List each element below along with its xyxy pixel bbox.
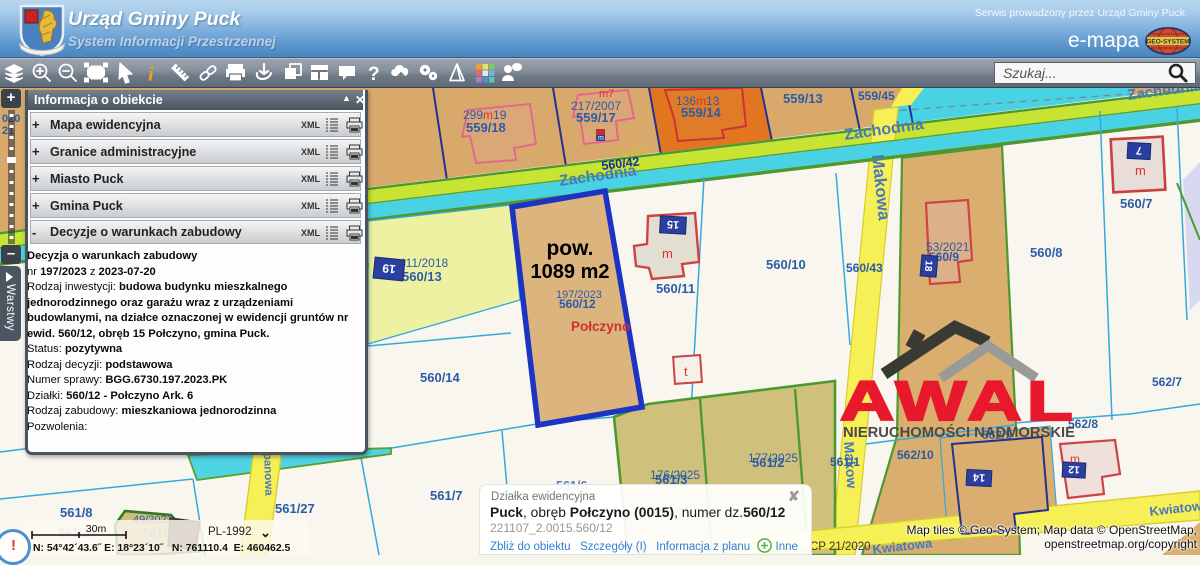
svg-text:559/45: 559/45 [858,89,895,103]
svg-text:15: 15 [667,218,680,231]
svg-text:562/10: 562/10 [897,448,934,462]
svg-text:561/1: 561/1 [830,455,860,469]
svg-text:561/7: 561/7 [430,488,463,503]
svg-text:560/7: 560/7 [1120,196,1153,211]
svg-text:560/8: 560/8 [1030,245,1063,260]
svg-text:1089 m2: 1089 m2 [531,261,610,283]
svg-text:?: ? [368,64,380,85]
svg-text:CP 21/2020: CP 21/2020 [810,541,871,553]
svg-text:t: t [684,364,688,379]
svg-text:560/43: 560/43 [846,261,883,275]
svg-text:560/13: 560/13 [402,269,442,284]
svg-text:19: 19 [381,261,396,276]
svg-text:7: 7 [1136,144,1143,156]
svg-text:i: i [148,62,154,86]
svg-text:559/13: 559/13 [783,91,823,106]
svg-text:pow.: pow. [546,237,593,260]
svg-text:m7: m7 [599,88,614,100]
svg-text:14: 14 [972,471,986,484]
svg-text:m: m [1135,163,1146,178]
svg-text:561/2: 561/2 [752,455,785,470]
svg-text:560/12: 560/12 [559,297,596,311]
svg-text:m: m [598,135,604,142]
svg-text:561/27: 561/27 [275,501,315,516]
svg-text:AWAL: AWAL [840,369,1078,432]
svg-text:411/2018: 411/2018 [399,256,448,270]
svg-text:GEO-SYSTEM: GEO-SYSTEM [1146,39,1189,46]
svg-text:m: m [662,246,673,261]
svg-text:559/18: 559/18 [466,120,506,135]
svg-text:560/14: 560/14 [420,370,461,385]
svg-text:559/17: 559/17 [576,110,616,125]
svg-text:559/14: 559/14 [681,105,722,120]
svg-text:562/7: 562/7 [1152,375,1182,389]
svg-text:560/11: 560/11 [656,281,695,296]
svg-text:m: m [1070,452,1080,466]
svg-text:18: 18 [922,260,934,272]
svg-text:560/10: 560/10 [766,257,806,272]
svg-text:561/8: 561/8 [60,505,93,520]
svg-text:Połczyno: Połczyno [571,319,630,334]
svg-text:NIERUCHOMOŚCI NADMORSKIE: NIERUCHOMOŚCI NADMORSKIE [843,423,1075,441]
svg-text:panowa: panowa [261,453,275,497]
